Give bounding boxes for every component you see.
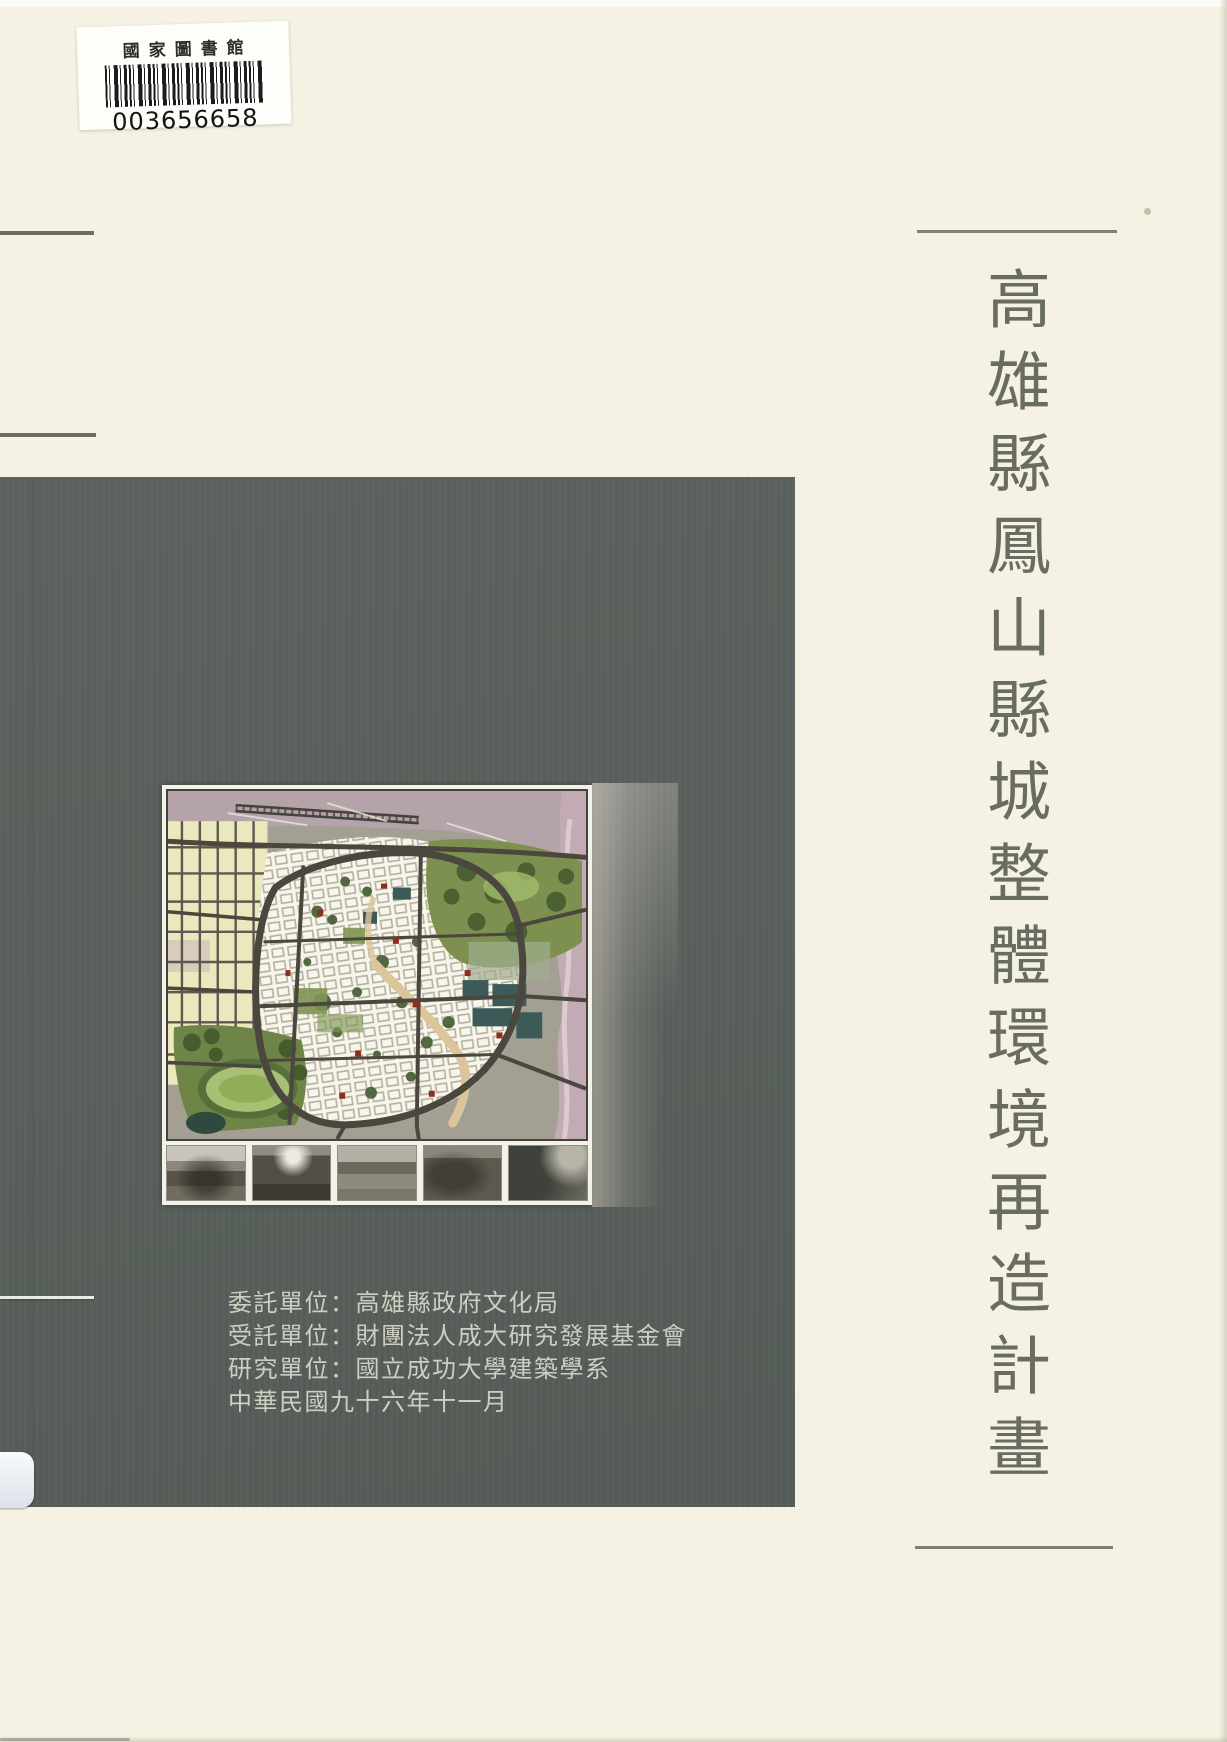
paper-edge-right bbox=[1219, 0, 1227, 1742]
title-rule-top bbox=[917, 230, 1117, 233]
library-name: 國家圖書館 bbox=[77, 32, 290, 64]
paper-edge-bottom bbox=[0, 1736, 1227, 1742]
barcode-number: 003656658 bbox=[79, 103, 292, 138]
panel-crease bbox=[31, 477, 33, 1507]
book-title: 高雄縣鳳山縣城整體環境再造計畫 bbox=[981, 266, 1045, 1511]
map-edge-glow bbox=[592, 783, 678, 1207]
scan-shadow-bottom-left bbox=[0, 1738, 130, 1741]
paper-speck bbox=[1144, 208, 1151, 215]
rule-line-left-upper bbox=[0, 231, 94, 235]
photo-strip bbox=[166, 1145, 588, 1201]
credit-line-trustee: 受託單位：財團法人成大研究發展基金會 bbox=[228, 1325, 687, 1349]
city-map-plate bbox=[162, 785, 592, 1205]
photo-courtyard-house bbox=[166, 1145, 246, 1201]
credits-block: 委託單位：高雄縣政府文化局 受託單位：財團法人成大研究發展基金會 研究單位：國立… bbox=[228, 1292, 687, 1424]
city-map-illustration bbox=[168, 791, 586, 1139]
rule-line-left-lower bbox=[0, 433, 96, 437]
spine-sticker bbox=[0, 1452, 34, 1508]
photo-farmhouse-field bbox=[337, 1145, 417, 1201]
library-barcode-label: 國家圖書館 003656658 bbox=[76, 21, 291, 131]
paper-edge-top bbox=[0, 0, 1227, 7]
fengshan-city-plan-map bbox=[166, 789, 588, 1141]
barcode-icon bbox=[105, 61, 264, 108]
photo-ruins-vegetation bbox=[508, 1145, 588, 1201]
credit-line-commissioner: 委託單位：高雄縣政府文化局 bbox=[228, 1292, 687, 1316]
credit-line-research-unit: 研究單位：國立成功大學建築學系 bbox=[228, 1358, 687, 1382]
book-cover: 國家圖書館 003656658 bbox=[0, 0, 1227, 1742]
photo-fort-wall bbox=[423, 1145, 503, 1201]
photo-alley bbox=[252, 1145, 332, 1201]
title-rule-bottom bbox=[915, 1546, 1113, 1549]
credit-line-date: 中華民國九十六年十一月 bbox=[228, 1391, 687, 1415]
rule-line-panel-white bbox=[0, 1296, 94, 1299]
